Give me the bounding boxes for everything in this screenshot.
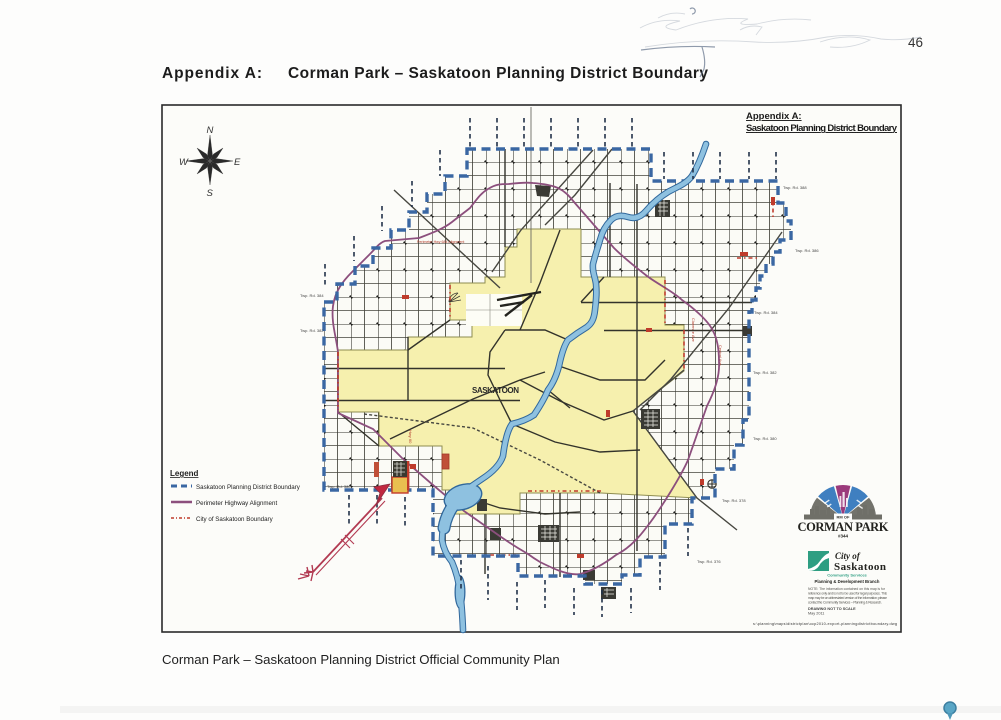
svg-text:map may be an abbreviated vers: map may be an abbreviated version of the… — [808, 596, 887, 600]
svg-text:Community Services: Community Services — [827, 573, 867, 578]
svg-text:s:\planning\maps\districtplan\: s:\planning\maps\districtplan\ocp2010-ex… — [753, 622, 897, 626]
svg-text:Hwy 60: Hwy 60 — [408, 430, 413, 444]
svg-text:Appendix A:: Appendix A: — [162, 65, 262, 82]
svg-text:Appendix A:: Appendix A: — [746, 111, 802, 122]
svg-text:DRAWING NOT TO SCALE: DRAWING NOT TO SCALE — [808, 607, 856, 611]
svg-text:May 2011: May 2011 — [808, 612, 824, 616]
svg-text:Twp. Rd. 376: Twp. Rd. 376 — [697, 559, 721, 564]
svg-text:E: E — [234, 157, 241, 168]
svg-text:NOTE: The information containe: NOTE: The information contained on this … — [808, 587, 886, 591]
svg-text:Twp. Rd. 380: Twp. Rd. 380 — [327, 484, 351, 489]
svg-text:Twp. Rd. 382: Twp. Rd. 382 — [300, 328, 324, 333]
svg-text:contact the Community Services: contact the Community Services – Plannin… — [808, 601, 882, 605]
svg-text:W: W — [179, 157, 189, 168]
svg-text:Twp. Rd. 380: Twp. Rd. 380 — [753, 436, 777, 441]
svg-text:reference only and is not to b: reference only and is not to be used for… — [808, 592, 887, 596]
svg-text:Twp. Rd. 386: Twp. Rd. 386 — [795, 248, 819, 253]
svg-text:Perimeter Hwy 684 Alignment: Perimeter Hwy 684 Alignment — [417, 240, 464, 244]
svg-text:Twp. Rd. 382: Twp. Rd. 382 — [753, 370, 777, 375]
svg-text:City of: City of — [835, 551, 861, 561]
svg-text:Twp. Rd. 378: Twp. Rd. 378 — [722, 498, 746, 503]
svg-text:RM OF: RM OF — [837, 515, 850, 520]
svg-text:Corman Park – Saskatoon Planni: Corman Park – Saskatoon Planning Distric… — [162, 652, 560, 667]
svg-text:Corman Park – Saskatoon Planni: Corman Park – Saskatoon Planning Distric… — [288, 65, 708, 82]
svg-text:Legend: Legend — [170, 469, 199, 478]
svg-text:N: N — [207, 125, 214, 136]
svg-text:S: S — [207, 188, 214, 199]
svg-text:Twp. Rd. 384: Twp. Rd. 384 — [300, 293, 324, 298]
svg-text:Perimeter Highway Alignment: Perimeter Highway Alignment — [196, 500, 277, 507]
svg-text:Saskatoon: Saskatoon — [834, 561, 886, 573]
svg-text:Twp. Rd. 388: Twp. Rd. 388 — [783, 185, 807, 190]
svg-text:CORMAN PARK: CORMAN PARK — [798, 520, 889, 534]
svg-text:Saskatoon Planning District Bo: Saskatoon Planning District Boundary — [196, 484, 301, 491]
svg-text:City of Saskatoon Boundary: City of Saskatoon Boundary — [196, 516, 274, 523]
svg-text:Planning & Development Branch: Planning & Development Branch — [815, 579, 880, 584]
svg-text:Twp. Rd. 384: Twp. Rd. 384 — [754, 310, 778, 315]
svg-text:SASKATOON: SASKATOON — [472, 386, 519, 395]
svg-text:Saskatoon Planning District Bo: Saskatoon Planning District Boundary — [746, 123, 898, 134]
svg-text:#344: #344 — [838, 534, 849, 539]
